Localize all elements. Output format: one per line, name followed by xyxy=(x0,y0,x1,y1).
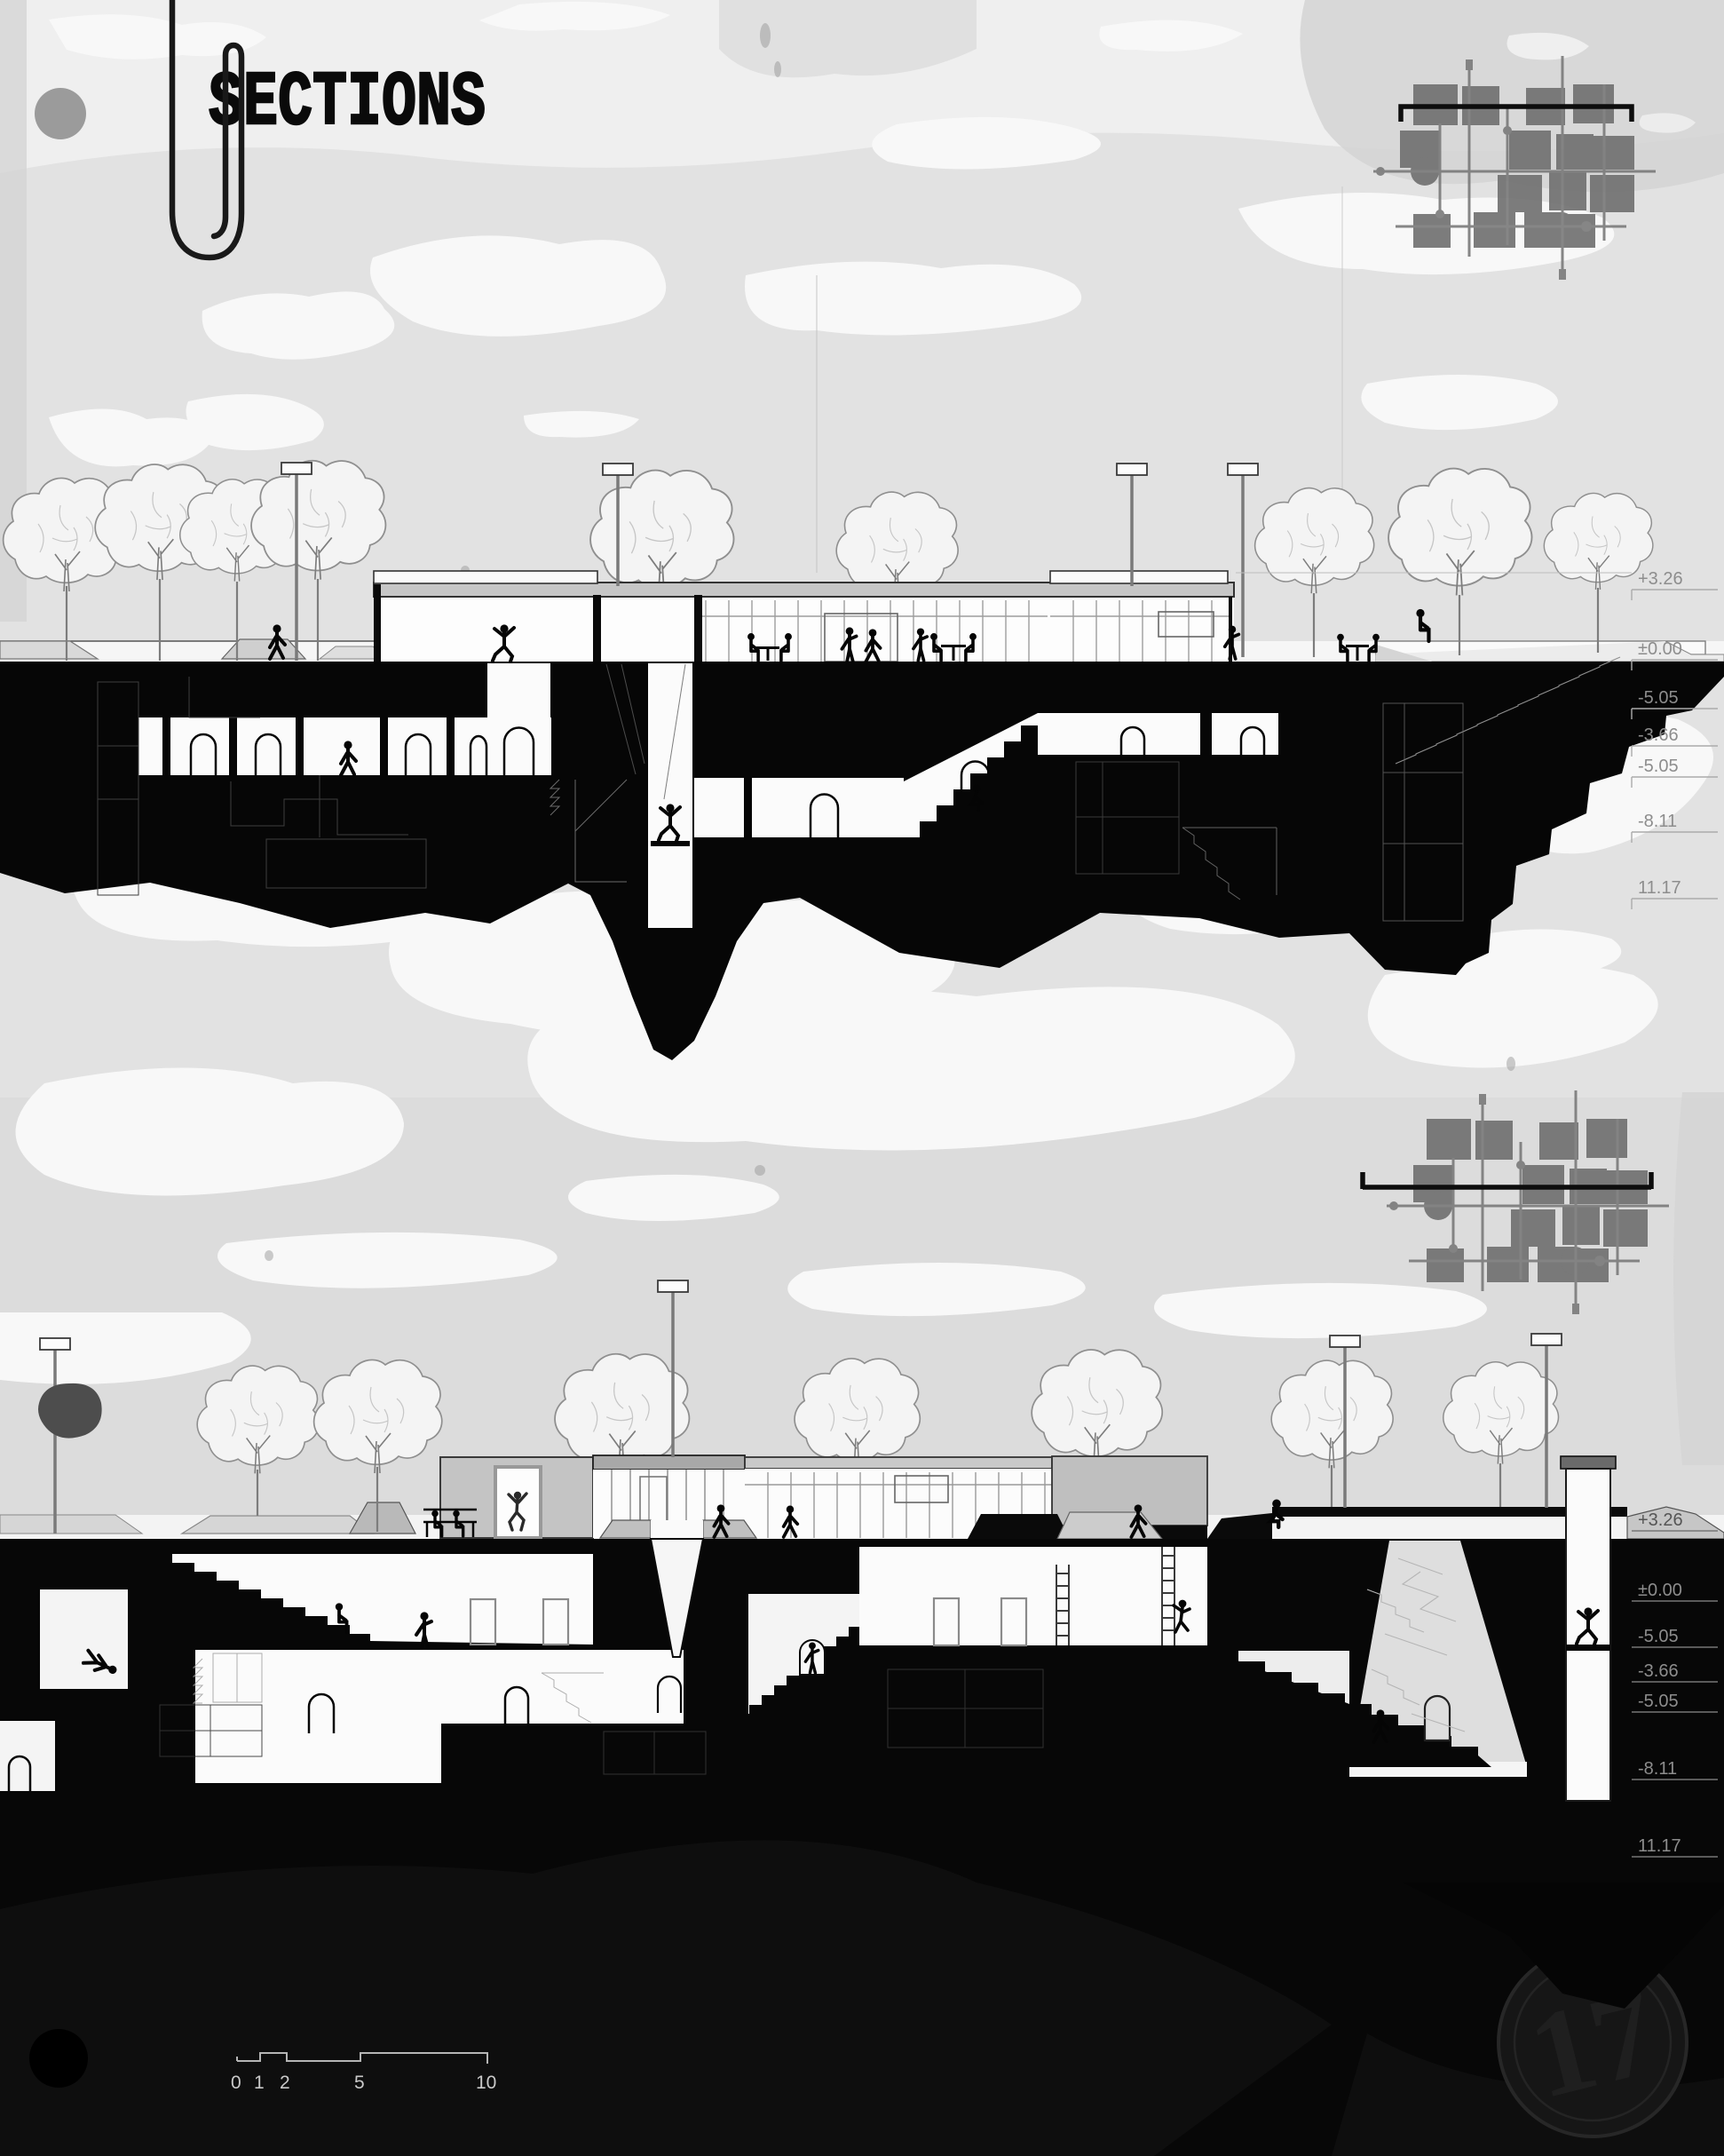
svg-text:1: 1 xyxy=(254,2073,265,2093)
svg-text:±0.00: ±0.00 xyxy=(1638,1581,1682,1600)
svg-text:-3.66: -3.66 xyxy=(1638,725,1679,745)
svg-text:-8.11: -8.11 xyxy=(1638,1759,1677,1779)
svg-text:-5.05: -5.05 xyxy=(1638,757,1679,776)
svg-text:SECTIONS: SECTIONS xyxy=(209,59,486,147)
svg-text:±0.00: ±0.00 xyxy=(1638,639,1682,659)
svg-text:-3.66: -3.66 xyxy=(1638,1661,1679,1681)
svg-text:11.17: 11.17 xyxy=(1638,878,1681,898)
svg-text:+3.26: +3.26 xyxy=(1638,569,1683,589)
svg-text:0: 0 xyxy=(231,2073,241,2093)
svg-text:2: 2 xyxy=(280,2073,290,2093)
svg-text:10: 10 xyxy=(476,2073,496,2093)
svg-text:5: 5 xyxy=(354,2073,365,2093)
svg-text:11.17: 11.17 xyxy=(1638,1836,1681,1856)
svg-text:-5.05: -5.05 xyxy=(1638,1627,1679,1646)
svg-text:-8.11: -8.11 xyxy=(1638,812,1677,831)
svg-text:-5.05: -5.05 xyxy=(1638,1692,1679,1711)
svg-text:-5.05: -5.05 xyxy=(1638,688,1679,708)
svg-text:+3.26: +3.26 xyxy=(1638,1510,1683,1530)
